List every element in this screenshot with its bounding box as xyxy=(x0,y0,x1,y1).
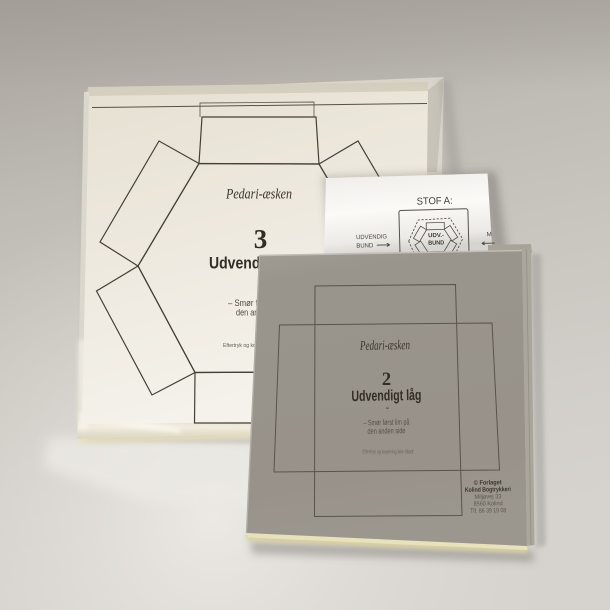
svg-text:UDVENDIG: UDVENDIG xyxy=(356,233,387,241)
svg-text:Tlf. 86 39 19 08: Tlf. 86 39 19 08 xyxy=(470,507,507,515)
svg-text:Pedari-æsken: Pedari-æsken xyxy=(359,337,410,353)
svg-text:UDV.-: UDV.- xyxy=(428,233,444,239)
svg-text:STOF A:: STOF A: xyxy=(417,196,453,208)
svg-text:M: M xyxy=(486,231,491,238)
svg-text:3: 3 xyxy=(254,224,268,254)
svg-text:Udvendigt låg: Udvendigt låg xyxy=(351,387,421,405)
svg-text:den anden side: den anden side xyxy=(367,426,406,436)
svg-text:BUND: BUND xyxy=(428,240,445,246)
svg-text:Eftertryk og kopiering ikke ti: Eftertryk og kopiering ikke tilladt xyxy=(363,450,414,456)
svg-text:Pedari-æsken: Pedari-æsken xyxy=(225,187,292,203)
svg-text:BUND: BUND xyxy=(356,242,374,249)
